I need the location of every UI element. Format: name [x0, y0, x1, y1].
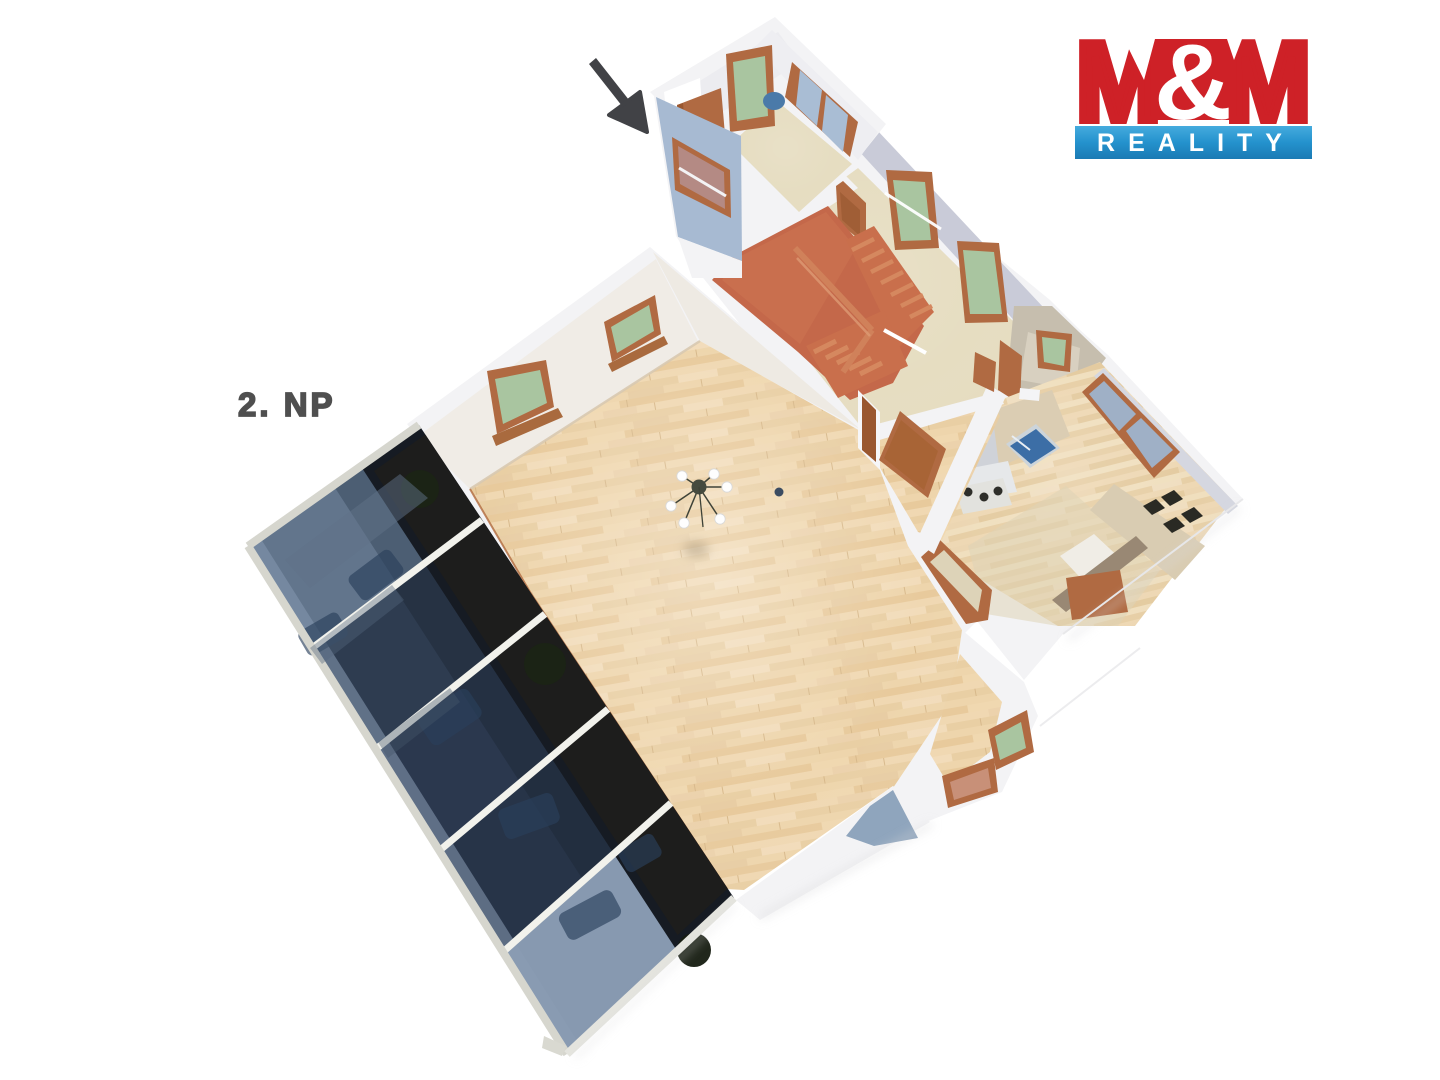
svg-text:M: M — [1226, 19, 1311, 144]
svg-text:M: M — [1076, 19, 1161, 144]
svg-text:REALITY: REALITY — [1097, 129, 1295, 157]
svg-text:2. NP: 2. NP — [238, 386, 336, 423]
svg-text:&: & — [1154, 21, 1232, 142]
